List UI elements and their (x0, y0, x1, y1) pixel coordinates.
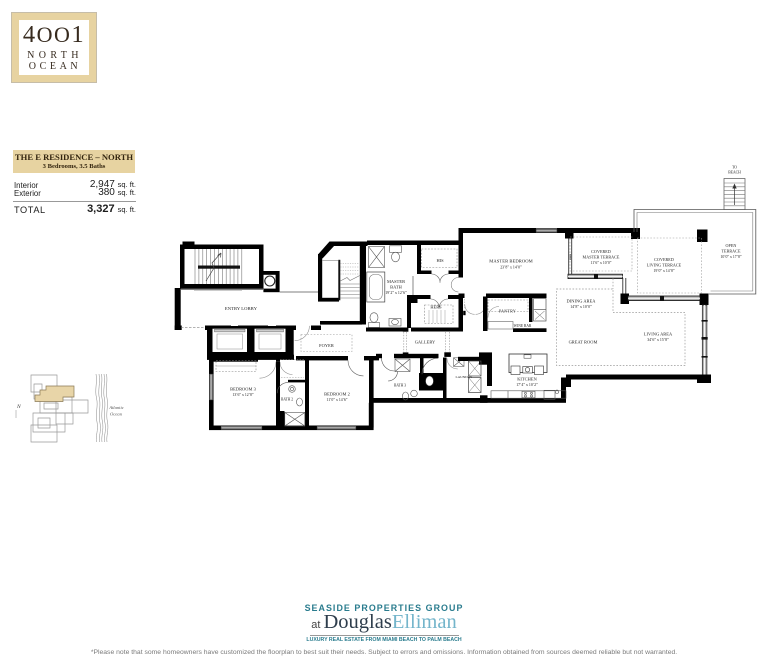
svg-text:OPEN: OPEN (726, 243, 737, 248)
svg-text:BEDROOM 3: BEDROOM 3 (230, 387, 256, 392)
svg-text:34’6” x 15’8”: 34’6” x 15’8” (647, 338, 669, 342)
svg-text:BEACH: BEACH (728, 171, 741, 175)
svg-text:Atlantic: Atlantic (108, 405, 124, 410)
svg-text:COVERED: COVERED (654, 257, 674, 262)
svg-text:LIVING AREA: LIVING AREA (644, 332, 673, 337)
svg-text:MASTER BEDROOM: MASTER BEDROOM (489, 259, 532, 264)
svg-text:BEDROOM 2: BEDROOM 2 (324, 392, 350, 397)
svg-text:23’8” x 14’0”: 23’8” x 14’0” (500, 266, 522, 270)
svg-text:13’6” x 12’8”: 13’6” x 12’8” (232, 393, 253, 397)
svg-text:KITCHEN: KITCHEN (517, 377, 537, 382)
svg-text:TERRACE: TERRACE (722, 249, 741, 254)
svg-text:Ocean: Ocean (110, 412, 123, 417)
svg-text:MASTER: MASTER (387, 279, 405, 284)
svg-text:HIS: HIS (436, 258, 444, 263)
svg-text:19’0” x 14’8”: 19’0” x 14’8” (653, 269, 674, 273)
svg-text:BATH 3: BATH 3 (394, 384, 406, 388)
svg-text:GALLERY: GALLERY (415, 340, 436, 345)
svg-text:TO: TO (732, 166, 737, 170)
svg-text:LIVING TERRACE: LIVING TERRACE (647, 263, 682, 268)
svg-text:LAUNDRY: LAUNDRY (456, 375, 473, 379)
svg-text:MASTER TERRACE: MASTER TERRACE (583, 255, 620, 260)
svg-text:ENTRY LOBBY: ENTRY LOBBY (225, 306, 258, 311)
svg-text:HERS: HERS (430, 305, 442, 310)
svg-text:FOYER: FOYER (319, 343, 334, 348)
svg-text:PANTRY: PANTRY (499, 309, 516, 314)
svg-text:14’8” x 10’0”: 14’8” x 10’0” (570, 305, 592, 309)
svg-text:BATH 2: BATH 2 (281, 398, 293, 402)
svg-text:11’0” x 14’6”: 11’0” x 14’6” (327, 398, 348, 402)
svg-text:11’6” x 10’0”: 11’6” x 10’0” (591, 261, 612, 265)
svg-text:WINE BAR: WINE BAR (514, 324, 532, 328)
svg-text:19’2” x 12’6”: 19’2” x 12’6” (385, 291, 407, 295)
svg-text:COVERED: COVERED (591, 249, 611, 254)
svg-text:17’4” x 10’2”: 17’4” x 10’2” (516, 383, 538, 387)
svg-text:DINING AREA: DINING AREA (567, 299, 597, 304)
svg-text:10’0” x 17’8”: 10’0” x 17’8” (720, 255, 741, 259)
svg-text:GREAT ROOM: GREAT ROOM (569, 340, 598, 345)
svg-text:BATH: BATH (390, 285, 402, 290)
svg-text:N: N (16, 404, 21, 410)
